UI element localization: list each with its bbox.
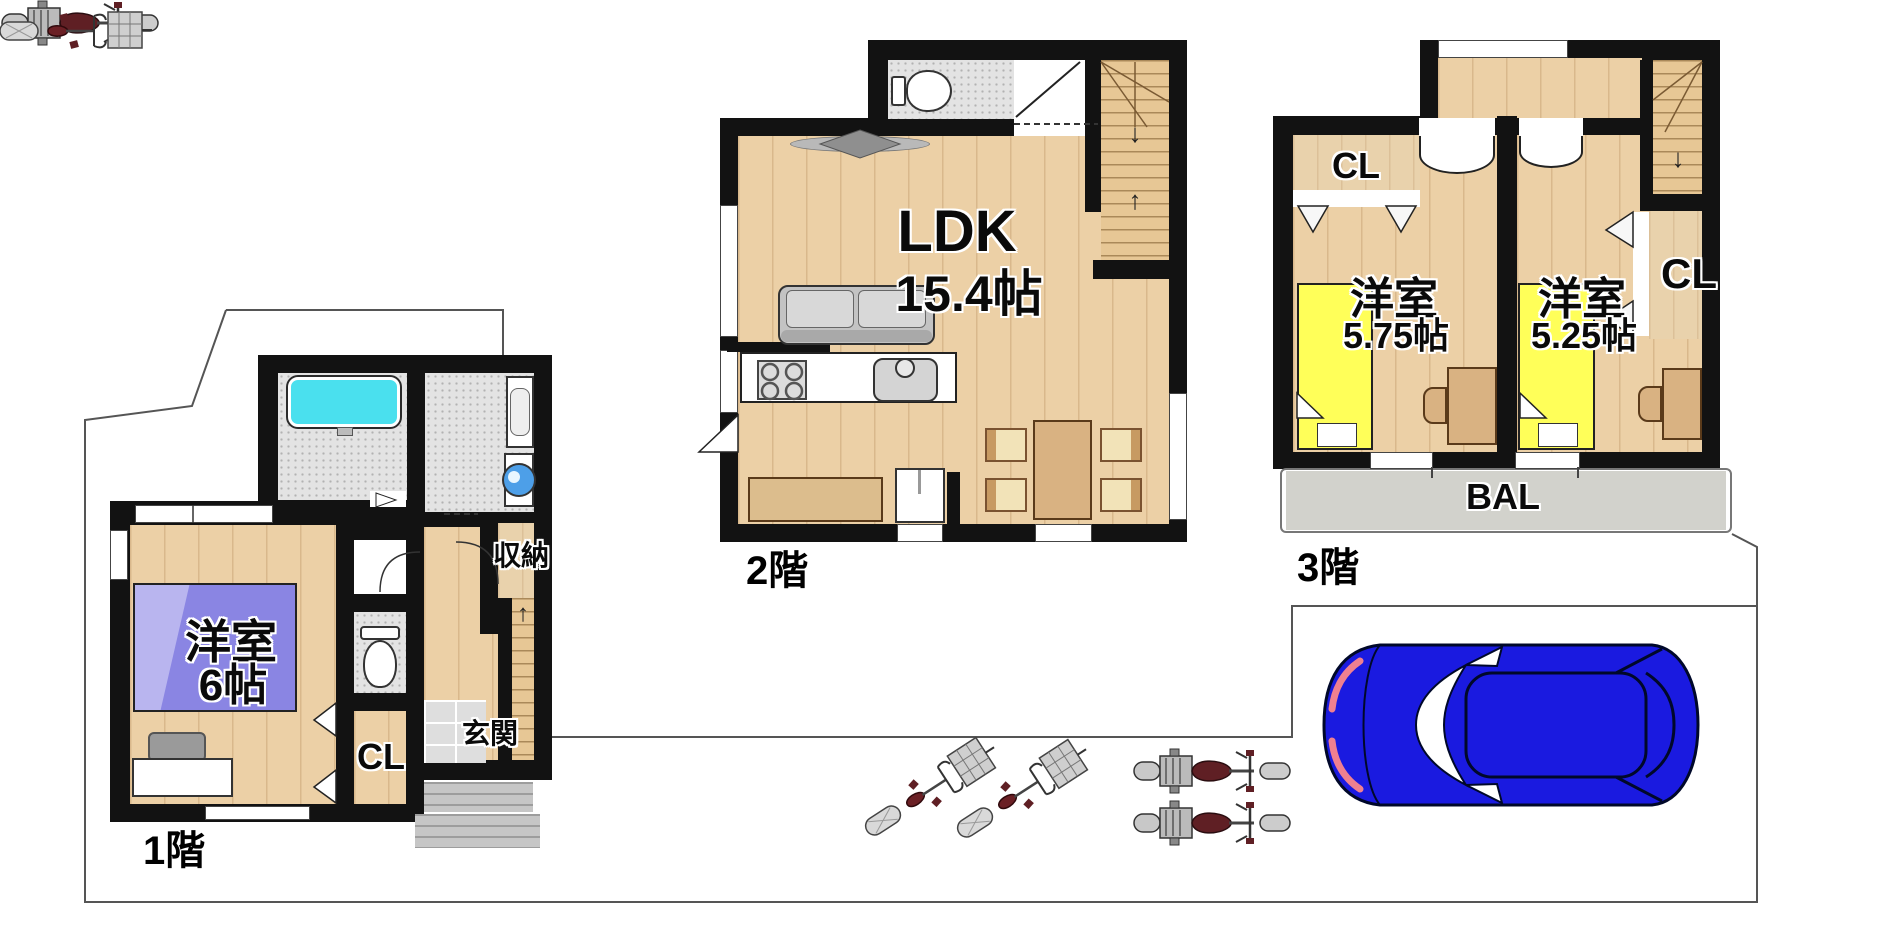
bath-faucet (337, 427, 353, 436)
toilet-1f-tank (360, 626, 400, 640)
stair-up-arrow-icon: ↑ (517, 602, 529, 626)
washbasin-bowl (510, 388, 530, 436)
room-1f-name: 洋室 (185, 619, 277, 665)
door-gap (370, 491, 406, 507)
wall (947, 472, 960, 540)
sofa-cushion (786, 290, 854, 328)
window (720, 350, 738, 413)
toilet-1f-bowl (363, 640, 397, 688)
dining-chair (1100, 478, 1142, 512)
window (110, 530, 128, 580)
wall (1640, 194, 1720, 211)
door-gap (1519, 118, 1583, 136)
wall (1497, 116, 1517, 452)
window (1370, 452, 1433, 469)
bed-3f-a-pillow (1317, 423, 1357, 447)
window (720, 205, 738, 337)
porch-step (415, 814, 540, 848)
floor-2-label: 2階 (746, 551, 808, 591)
wall (1093, 260, 1187, 279)
toilet-2f-tank (891, 76, 906, 106)
floor-plan-canvas: 洋室 6帖 CL 玄関 収納 ↑ 1階 (0, 0, 1887, 944)
desk-3f-a (1447, 367, 1497, 445)
entrance-label: 玄関 (462, 720, 518, 748)
kitchen-sink (873, 358, 938, 402)
desk-1f (132, 758, 233, 797)
dining-chair (985, 478, 1027, 512)
closet-3f-a-doorway (1293, 190, 1420, 207)
window (205, 806, 310, 820)
stair-down-arrow-icon: ↓ (1672, 145, 1685, 171)
room-3f-b-size: 5.25帖 (1531, 318, 1637, 354)
window (897, 524, 943, 542)
storage-label: 収納 (493, 542, 549, 570)
sofa-back (781, 330, 932, 342)
sideboard (748, 477, 883, 522)
door-swing-arc (1419, 136, 1495, 174)
window (135, 505, 273, 523)
closet-3f-a-label: CL (1332, 148, 1380, 184)
dining-chair (985, 428, 1027, 462)
stairs-3f (1653, 60, 1702, 194)
chair-3f-b (1638, 386, 1662, 422)
door-swing-arc (1519, 136, 1583, 168)
bathtub (288, 377, 400, 427)
window (1169, 393, 1187, 520)
room-1f-size: 6帖 (199, 664, 267, 708)
bed-3f-b-pillow (1538, 423, 1578, 447)
desk-3f-b (1662, 368, 1702, 440)
wall (1640, 60, 1653, 194)
dining-table (1033, 420, 1092, 520)
chair-3f-a (1423, 387, 1447, 424)
stairs-2f (1101, 60, 1169, 262)
hall-floor (354, 540, 406, 594)
stove (757, 360, 807, 400)
stair-up-arrow-icon: ↑ (1129, 187, 1142, 213)
washing-machine (504, 453, 534, 507)
porch-step (424, 782, 533, 812)
wall (1085, 60, 1101, 212)
ceiling-light (790, 136, 930, 152)
window (1035, 524, 1092, 542)
window (1438, 40, 1568, 58)
closet-1f-label: CL (357, 739, 405, 775)
toilet-2f-door-area (1014, 60, 1085, 136)
closet-3f-b-label: CL (1661, 253, 1717, 295)
refrigerator-handle (918, 470, 921, 494)
room-3f-a-size: 5.75帖 (1343, 318, 1449, 354)
window (1515, 452, 1580, 469)
hall-3f-floor (1438, 58, 1642, 118)
door-gap (1419, 118, 1495, 136)
dining-chair (1100, 428, 1142, 462)
room-2f-name: LDK (897, 203, 1016, 261)
stair-down-arrow-icon: ↓ (1129, 120, 1142, 146)
floor-1-label: 1階 (143, 831, 205, 871)
room-2f-size: 15.4帖 (895, 269, 1042, 319)
toilet-2f-bowl (906, 70, 952, 112)
balcony-label: BAL (1466, 479, 1540, 515)
floor-3-label: 3階 (1297, 548, 1359, 588)
